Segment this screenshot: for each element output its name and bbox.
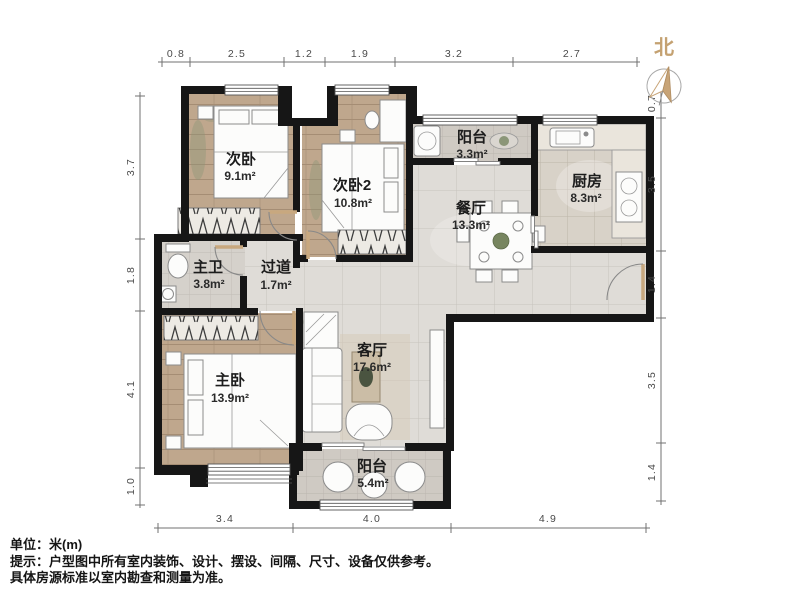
dim-label: 1.8 xyxy=(125,266,137,284)
sofa xyxy=(302,348,342,432)
bathroom-sink xyxy=(161,286,176,302)
window xyxy=(335,85,389,95)
room-name-label: 主卧 xyxy=(215,371,245,389)
facade-recess xyxy=(290,82,329,120)
dim-label: 3.2 xyxy=(445,48,463,60)
balcony-chair xyxy=(323,462,354,492)
room-name-label: 主卫 xyxy=(193,258,223,276)
room-name-label: 过道 xyxy=(261,258,291,276)
tip-note-line2: 具体房源标准以室内勘查和测量为准。 xyxy=(10,570,439,587)
room-area-label: 3.3m² xyxy=(456,147,487,161)
room-name-label: 次卧 xyxy=(226,150,256,168)
balcony-chair xyxy=(394,462,425,492)
dim-label: 1.4 xyxy=(646,463,658,481)
stove xyxy=(616,172,642,222)
dim-label: 1.9 xyxy=(351,48,369,60)
dim-label: 3.7 xyxy=(125,158,137,176)
north-label: 北 xyxy=(654,36,674,59)
room-name-label: 阳台 xyxy=(357,457,387,475)
wardrobe xyxy=(338,230,406,254)
planter xyxy=(490,133,518,149)
room-area-label: 1.7m² xyxy=(260,278,291,292)
room-area-label: 5.4m² xyxy=(357,476,388,490)
room-area-label: 13.3m² xyxy=(452,218,490,232)
room-name-label: 次卧2 xyxy=(333,176,371,194)
washing-machine xyxy=(414,126,440,156)
room-area-label: 13.9m² xyxy=(211,391,249,405)
room-name-label: 厨房 xyxy=(572,172,602,190)
dim-label: 4.0 xyxy=(363,513,381,525)
room-name-label: 餐厅 xyxy=(456,199,486,217)
dim-label: 0.7 xyxy=(646,94,658,112)
window xyxy=(320,500,413,510)
wardrobe xyxy=(178,208,260,234)
floorplan-page: 0.8 2.5 1.2 1.9 3.2 2.7 3.7 1.8 4.1 1.0 … xyxy=(0,0,800,600)
window xyxy=(423,115,517,125)
window xyxy=(206,464,292,483)
armchair xyxy=(346,404,392,440)
dim-label: 1.0 xyxy=(125,477,137,495)
dim-label: 1.4 xyxy=(646,275,658,293)
tip-note-line1: 提示：户型图中所有室内装饰、设计、摆设、间隔、尺寸、设备仅供参考。 xyxy=(10,554,439,571)
dim-label: 4.1 xyxy=(125,380,137,398)
dim-label: 3.5 xyxy=(646,371,658,389)
dim-label: 4.9 xyxy=(539,513,557,525)
room-area-label: 10.8m² xyxy=(334,196,372,210)
notes: 单位：米(m) 提示：户型图中所有室内装饰、设计、摆设、间隔、尺寸、设备仅供参考… xyxy=(10,537,439,587)
hall-stand xyxy=(304,312,338,348)
kitchen-sink xyxy=(550,128,594,147)
room-name-label: 客厅 xyxy=(356,341,387,359)
toilet xyxy=(166,244,190,278)
room-name-label: 阳台 xyxy=(457,128,487,146)
dim-label: 2.7 xyxy=(563,48,581,60)
dim-label: 0.8 xyxy=(167,48,185,60)
floorplan-svg: 0.8 2.5 1.2 1.9 3.2 2.7 3.7 1.8 4.1 1.0 … xyxy=(0,0,800,600)
dim-label: 1.2 xyxy=(295,48,313,60)
wardrobe xyxy=(164,316,258,340)
dim-label: 3.5 xyxy=(646,175,658,193)
unit-note: 单位：米(m) xyxy=(10,537,439,554)
room-area-label: 9.1m² xyxy=(224,169,255,183)
room-area-label: 8.3m² xyxy=(570,191,601,205)
dim-label: 3.4 xyxy=(216,513,234,525)
window xyxy=(225,85,278,95)
dim-label: 2.5 xyxy=(228,48,246,60)
room-area-label: 3.8m² xyxy=(193,277,224,291)
window xyxy=(543,115,597,125)
room-area-label: 17.6m² xyxy=(353,360,391,374)
